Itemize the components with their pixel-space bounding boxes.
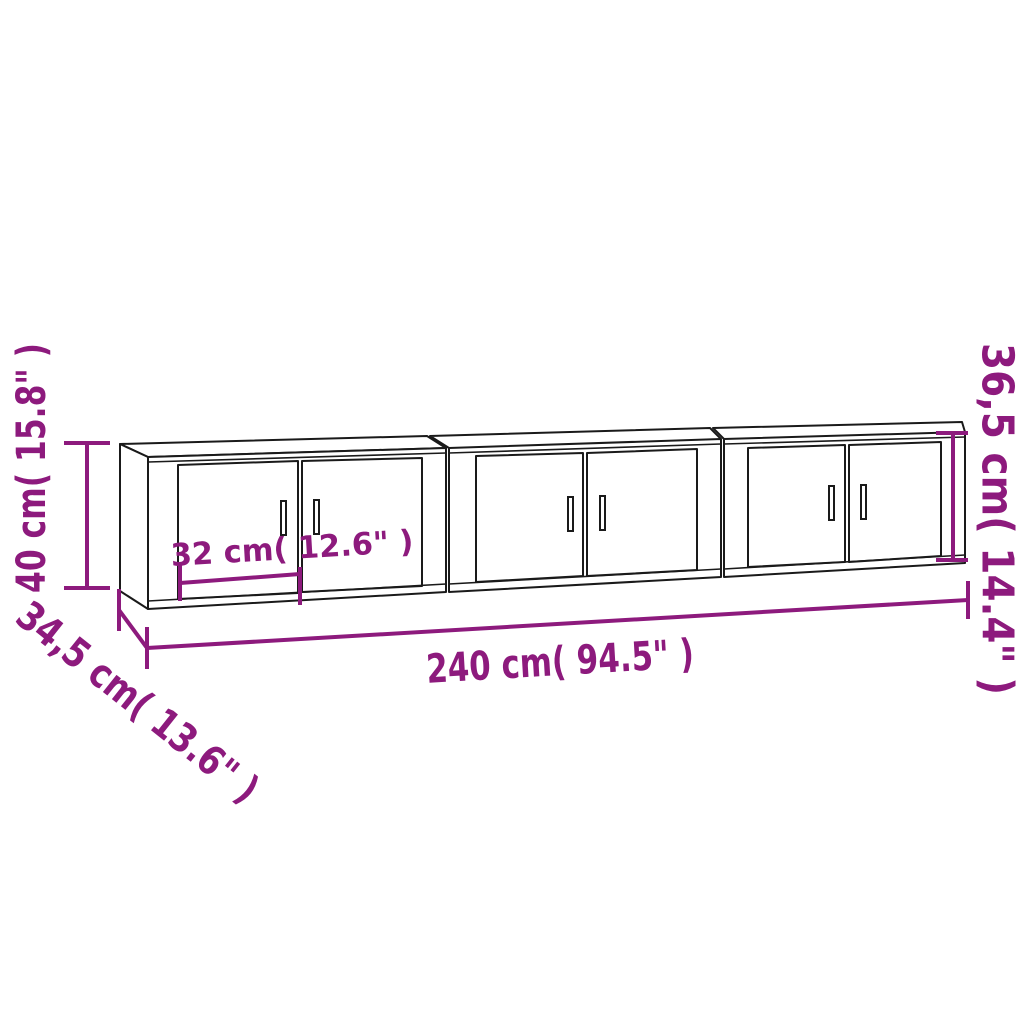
cabinet-2-left-handle <box>568 497 573 531</box>
cabinet-3-right-handle <box>861 485 866 519</box>
dimension-label-total-width: 240 cm( 94.5" ) <box>425 631 695 693</box>
cabinet-1-side-face <box>120 444 148 609</box>
cabinet-2-front-face <box>449 439 721 592</box>
dimension-label-side-height: 36,5 cm( 14.4" ) <box>972 343 1023 695</box>
dimension-label-depth: 34,5 cm( 13.6" ) <box>7 593 267 813</box>
cabinet-2 <box>430 428 721 592</box>
height-dimension-line <box>64 443 110 588</box>
cabinet-3-left-handle <box>829 486 834 520</box>
cabinet-3 <box>713 422 965 577</box>
cabinet-1 <box>120 436 446 609</box>
product-dimension-diagram: 40 cm( 15.8" ) 34,5 cm( 13.6" ) 240 cm( … <box>0 0 1024 1024</box>
dimension-label-height: 40 cm( 15.8" ) <box>9 343 55 593</box>
cabinet-2-right-handle <box>600 496 605 530</box>
diagram-canvas: 40 cm( 15.8" ) 34,5 cm( 13.6" ) 240 cm( … <box>0 0 1024 1024</box>
cabinet-1-left-handle <box>281 501 286 535</box>
